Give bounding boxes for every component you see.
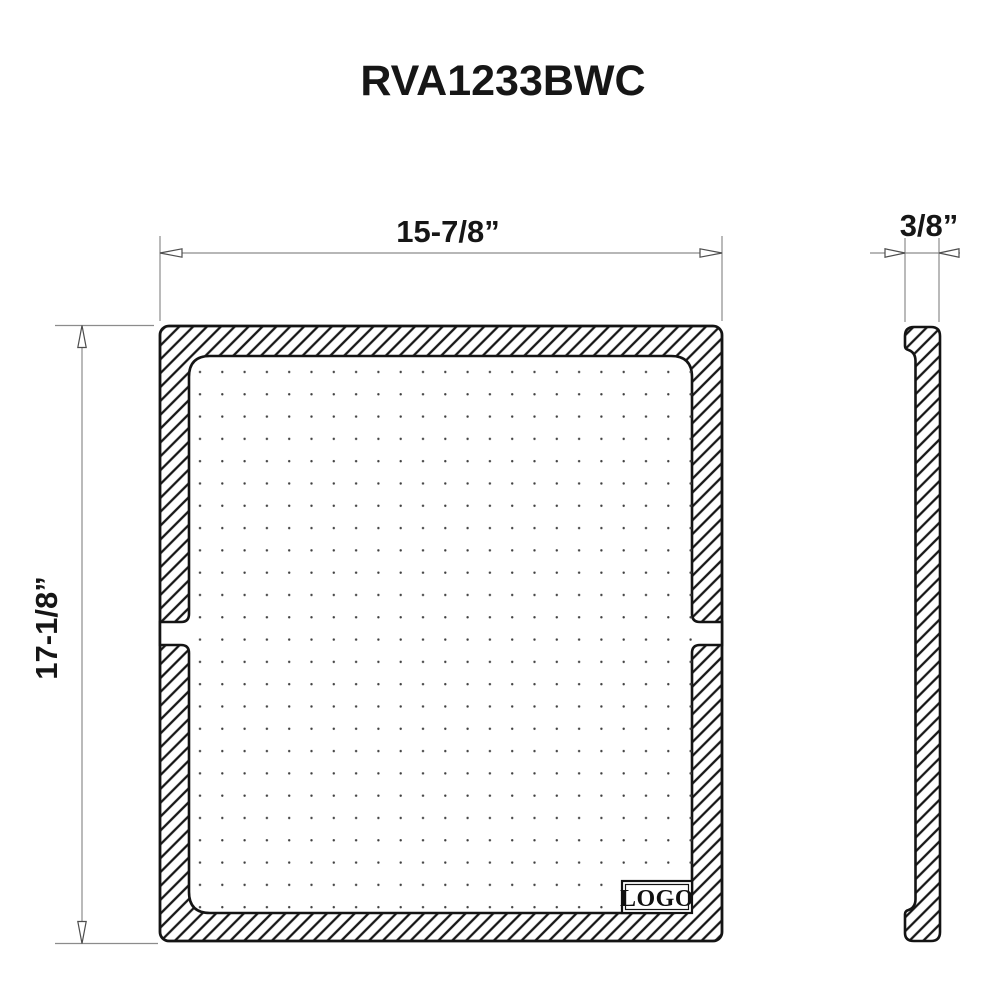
thickness-dimension-label: 3/8”: [900, 208, 959, 243]
recess-dot-texture: [189, 356, 692, 913]
side-profile: [905, 327, 940, 941]
page-title: RVA1233BWC: [360, 57, 645, 105]
logo-label: LOGO: [620, 886, 694, 912]
side-view: [905, 327, 940, 941]
front-view: LOGO: [160, 326, 722, 941]
arrowhead-left-icon: [160, 249, 182, 257]
width-dimension-label: 15-7/8”: [396, 214, 499, 249]
drawing-sheet: RVA1233BWC LOGO 15-7/8”: [0, 0, 1000, 1000]
arrowhead-down-icon: [78, 922, 86, 944]
thickness-dimension: 3/8”: [870, 208, 960, 322]
arrowhead-inward-right-icon: [885, 249, 905, 257]
arrowhead-inward-left-icon: [939, 249, 959, 257]
arrowhead-up-icon: [78, 326, 86, 348]
technical-drawing: RVA1233BWC LOGO 15-7/8”: [0, 0, 1000, 1000]
height-dimension: 17-1/8”: [29, 326, 158, 944]
height-dimension-label: 17-1/8”: [29, 576, 64, 679]
logo-plate: LOGO: [620, 881, 694, 913]
arrowhead-right-icon: [700, 249, 722, 257]
width-dimension: 15-7/8”: [160, 214, 722, 321]
